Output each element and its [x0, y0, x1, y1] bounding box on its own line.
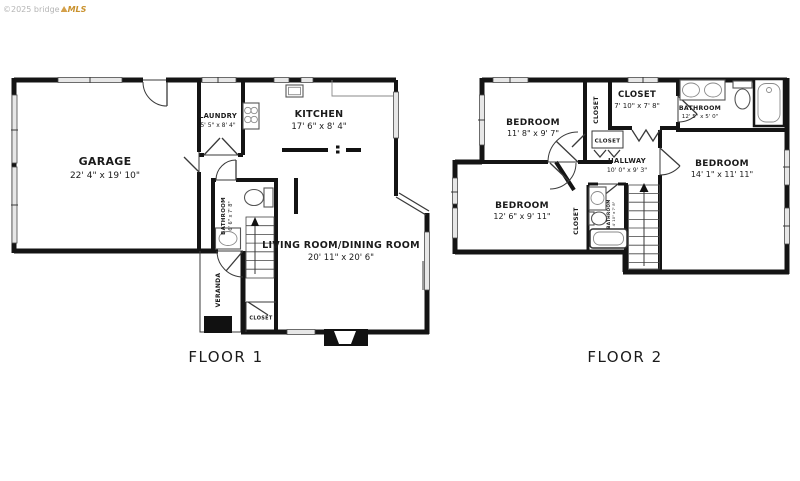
veranda-post [204, 316, 232, 333]
bedroom-right-door-arc [660, 166, 680, 175]
hall-closet-label: CLOSET [595, 139, 621, 145]
toilet-bowl [245, 190, 264, 206]
floorplan-page: ©2025 bridgeMLS [0, 0, 800, 481]
floor2-caption: FLOOR 2 [587, 348, 662, 366]
garage-hall-door-leaf [184, 157, 199, 172]
bathroom1-room-dims: 6' 6" x 7' 8" [228, 201, 234, 230]
laundry-door-leaves [204, 138, 238, 155]
closet1-label: CLOSET [249, 316, 272, 322]
bar-counter-dot [336, 151, 340, 154]
hallway-dims: 10' 0" x 9' 3" [607, 167, 647, 174]
laundry-top-window [202, 78, 236, 83]
garage-left-window [12, 95, 17, 163]
bathroom-small-dims: 4' 10" x 7' 8" [611, 201, 616, 226]
bathtub [754, 79, 784, 126]
garage-entry-door-arc [143, 82, 167, 106]
bedroom-bl-dims: 12' 6" x 9' 11" [493, 212, 550, 221]
toilet-tank [733, 81, 752, 88]
kitchen-top-window [274, 78, 289, 83]
toilet-tank [264, 188, 273, 207]
floor-plan-drawing: GARAGE 22' 4" x 19' 10" LAUNDRY 5' 5" x … [0, 0, 800, 481]
closet-bl-label: CLOSET [573, 207, 580, 235]
living-bottom-window [287, 330, 315, 335]
laundry-room-dims: 5' 5" x 8' 4" [200, 122, 236, 129]
floor2: BEDROOM 11' 8" x 9' 7" CLOSET CLOSET 7' … [451, 77, 790, 366]
bedroom-right-dims: 14' 1" x 11' 11" [691, 170, 753, 179]
garage-room-dims: 22' 4" x 19' 10" [70, 171, 140, 181]
garage-room-label: GARAGE [79, 155, 132, 168]
bar-counter-dot [336, 146, 340, 149]
living-room-dims: 20' 11" x 20' 6" [308, 253, 374, 263]
living-right-window [425, 232, 430, 290]
bathroom-main-label: BATHROOM [679, 105, 721, 112]
kitchen-room-dims: 17' 6" x 8' 4" [291, 122, 346, 132]
bedroom-bl-left-window [453, 178, 458, 204]
walkin-closet-label: CLOSET [618, 90, 656, 100]
toilet-bowl [592, 212, 607, 225]
walkin-closet-dims: 7' 10" x 7' 8" [614, 102, 660, 110]
stove [243, 103, 259, 129]
bedroom-bl-left-window [453, 208, 458, 238]
sink-counter [589, 187, 606, 210]
hall-closet-bifold [594, 150, 620, 157]
bedroom-tl-dims: 11' 8" x 9' 7" [507, 129, 559, 138]
stairs-up-arrow [251, 217, 259, 226]
floor1: GARAGE 22' 4" x 19' 10" LAUNDRY 5' 5" x … [11, 77, 430, 366]
double-sink-counter [680, 80, 725, 100]
bedroom-bl-label: BEDROOM [495, 201, 549, 211]
hallway-label: HALLWAY [608, 157, 646, 165]
toilet-bowl [735, 89, 750, 109]
bathroom1-door-arc [216, 160, 236, 180]
bathroom1-room-label: BATHROOM [221, 197, 227, 235]
veranda-label: VERANDA [215, 273, 222, 308]
closet1-door-leaf [248, 302, 268, 315]
bathroom-main-dims: 12' 5" x 5' 0" [682, 114, 719, 120]
kitchen-top-window [301, 78, 313, 83]
closet-strip-label: CLOSET [593, 96, 600, 124]
living-room-label: LIVING ROOM/DINING ROOM [262, 240, 420, 251]
front-door-leaf [226, 251, 243, 271]
patio-slider-door [396, 193, 429, 215]
bedroom-tl-label: BEDROOM [506, 118, 560, 128]
bedroom-right-door-leaf [660, 148, 680, 166]
floor2-stairs [629, 183, 660, 269]
laundry-room-label: LAUNDRY [199, 112, 237, 120]
bedroom-right-label: BEDROOM [695, 159, 749, 169]
kitchen-right-window [394, 92, 399, 138]
stairs-up-arrow [640, 183, 649, 192]
walkin-closet-bifold [632, 130, 660, 141]
kitchen-room-label: KITCHEN [295, 109, 344, 120]
floor1-caption: FLOOR 1 [188, 348, 263, 366]
